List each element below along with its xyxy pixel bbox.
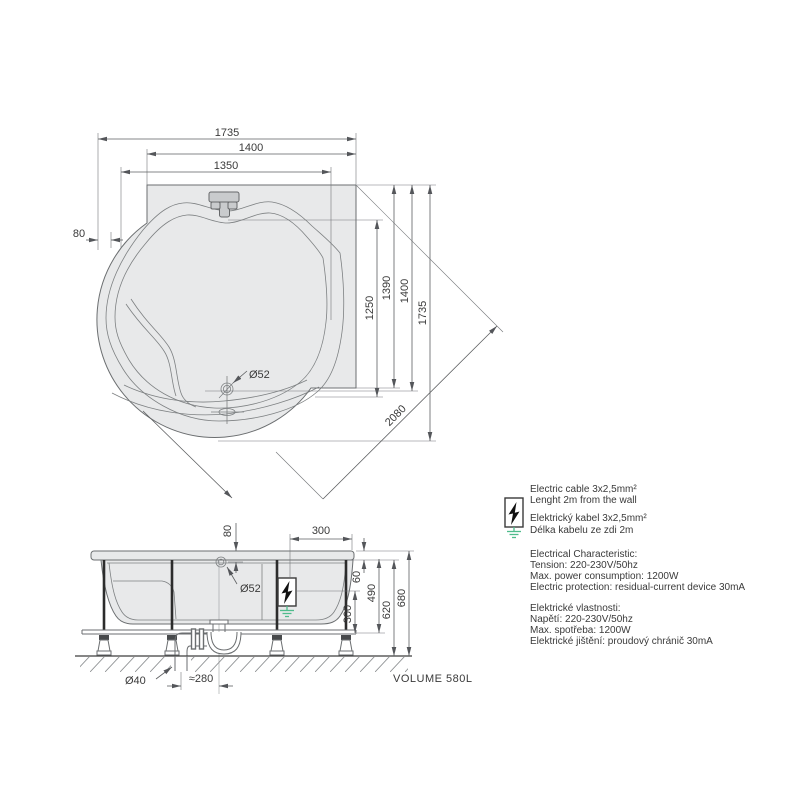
top-view: Ø52 1735 1400 1350 80 [73,127,503,499]
dim-total: 680 [396,589,408,607]
cable-note-line: Elektrický kabel 3x2,5mm² [530,513,647,524]
dim-depth-b: 1400 [399,279,411,303]
volume-label: VOLUME 580L [393,673,472,685]
dim-width-wall: 1400 [239,142,263,154]
floor-hatching [80,657,408,672]
dim-trap-offset: ≈280 [189,673,213,685]
electrical-en-line: Tension: 220-230V/50hz [530,560,638,571]
cable-note-line: Lenght 2m from the wall [530,495,637,506]
drawing-svg: Ø52 1735 1400 1350 80 [0,0,800,800]
dim-depth-basin: 1250 [364,296,376,320]
dim-width-total: 1735 [215,127,239,139]
notes: Electric cable 3x2,5mm² Lenght 2m from t… [505,484,745,647]
dim-body: 620 [381,601,393,619]
dim-box-offset: 300 [312,525,330,537]
dim-depth-a: 1390 [381,276,393,300]
electrical-en-line: Max. power consumption: 1200W [530,571,679,582]
electrical-cz-line: Elektrické vlastnosti: [530,603,621,614]
dim-drain-top: 80 [222,525,234,537]
electrical-cz-line: Max. spotřeba: 1200W [530,625,631,636]
ground-symbol-icon [507,527,521,538]
electrical-cz-line: Napětí: 220-230V/50hz [530,614,633,625]
dim-rim: 60 [351,571,363,583]
dim-offset-left: 80 [73,228,85,240]
drain-label-top: Ø52 [249,369,270,381]
electrical-characteristics-cz: Elektrické vlastnosti: Napětí: 220-230V/… [530,603,713,647]
electrical-en-line: Electric protection: residual-current de… [530,582,745,593]
waste-pipe-label: Ø40 [125,675,146,687]
dim-box-height: 300 [342,605,354,623]
tub-rim-side [91,551,354,560]
electric-cable-icon [505,498,523,538]
tub-body-side [101,560,353,624]
dim-width-inner: 1350 [214,160,238,172]
bathtub-technical-drawing: Ø52 1735 1400 1350 80 [0,0,800,800]
side-view: 80 300 Ø52 60 490 620 680 300 [75,523,472,694]
electrical-characteristics-en: Electrical Characteristic: Tension: 220-… [530,549,745,593]
dim-frame: 490 [366,584,378,602]
dim-diagonal: 2080 [383,403,409,429]
cable-note-line: Délka kabelu ze zdi 2m [530,525,633,536]
dim-depth-total: 1735 [417,301,429,325]
cable-note: Electric cable 3x2,5mm² Lenght 2m from t… [530,484,647,536]
electrical-en-line: Electrical Characteristic: [530,549,637,560]
ground [75,656,412,673]
drain-label-side: Ø52 [240,583,261,595]
electrical-cz-line: Elektrické jištění: proudový chránič 30m… [530,636,713,647]
cable-note-line: Electric cable 3x2,5mm² [530,484,637,495]
